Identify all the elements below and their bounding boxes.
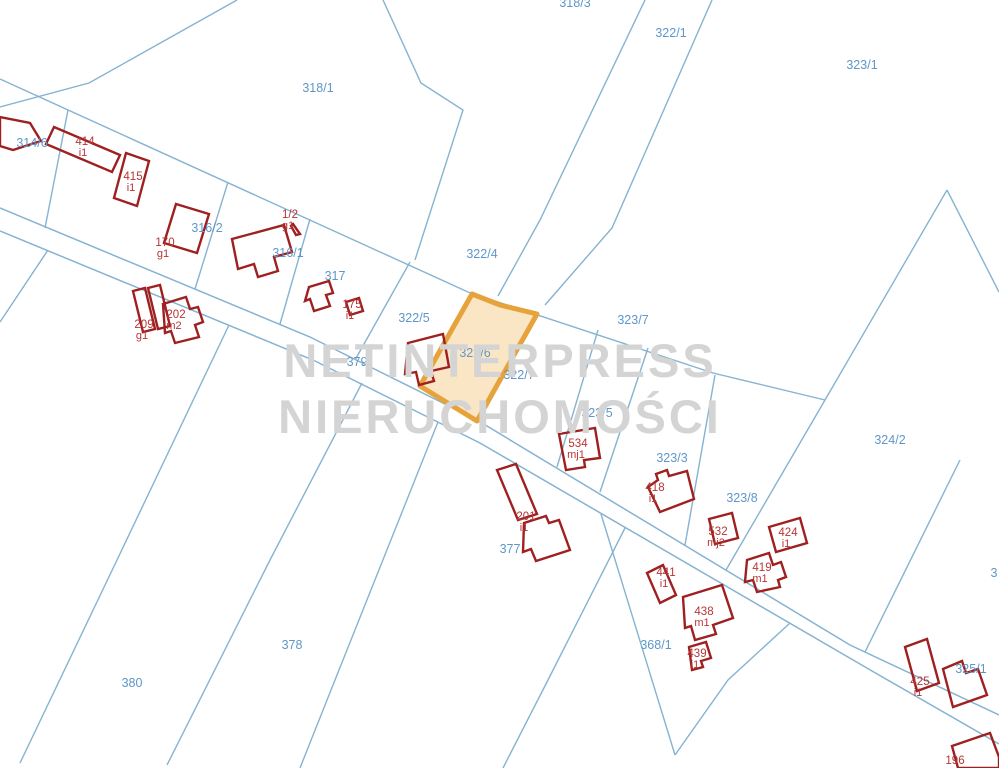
building-suffix-label: m1 — [752, 573, 767, 585]
boundary-line — [195, 182, 228, 289]
building-suffix-label: i1 — [914, 687, 923, 699]
building-suffix-label: i1 — [649, 493, 658, 505]
parcel-label[interactable]: 322/4 — [466, 247, 497, 261]
boundary-line — [726, 190, 947, 570]
building-suffix-label: m2 — [166, 320, 181, 332]
parcel-label[interactable]: 322/1 — [655, 26, 686, 40]
building-suffix-label: i1 — [127, 182, 136, 194]
building-suffix-label: i1 — [660, 578, 669, 590]
building-suffix-label: i1 — [346, 310, 355, 322]
building-suffix-label: g1 — [282, 220, 294, 232]
parcel-label[interactable]: 368/1 — [640, 638, 671, 652]
parcel-label[interactable]: 318/3 — [559, 0, 590, 10]
watermark-line-1: NETINTERPRESS — [283, 334, 716, 387]
map-canvas[interactable]: 318/3322/1323/1318/1314/6316/2316/1322/4… — [0, 0, 999, 768]
cadastral-map: 318/3322/1323/1318/1314/6316/2316/1322/4… — [0, 0, 999, 768]
parcel-label[interactable]: 318/1 — [302, 81, 333, 95]
building-number-label: 196 — [945, 755, 964, 767]
building-suffix-label: i1 — [691, 659, 700, 671]
parcel-label[interactable]: 323/3 — [656, 451, 687, 465]
building-suffix-label: g1 — [157, 248, 169, 260]
boundary-line — [503, 528, 625, 768]
building-suffix-label: i1 — [79, 147, 88, 159]
parcel-label[interactable]: 316/1 — [272, 246, 303, 260]
watermark: NETINTERPRESS NIERUCHOMOŚCI — [278, 334, 722, 443]
boundary-line — [300, 422, 438, 768]
building-suffix-label: mj1 — [567, 449, 585, 461]
parcel-label[interactable]: 380 — [122, 676, 143, 690]
building-suffix-label: g1 — [136, 330, 148, 342]
building-suffix-label: i1 — [520, 522, 529, 534]
parcel-label[interactable]: 314/6 — [16, 136, 47, 150]
boundary-line — [545, 0, 712, 305]
boundary-line — [383, 0, 463, 260]
parcel-label[interactable]: 378 — [282, 638, 303, 652]
boundary-line — [0, 250, 48, 322]
parcel-label[interactable]: 323/8 — [726, 491, 757, 505]
parcel-label[interactable]: 325/1 — [955, 662, 986, 676]
boundary-line — [498, 0, 645, 296]
watermark-line-2: NIERUCHOMOŚCI — [278, 390, 722, 443]
boundary-line — [947, 190, 999, 292]
boundary-line — [865, 460, 960, 652]
parcel-label[interactable]: 322/5 — [398, 311, 429, 325]
building-suffix-label: mj2 — [707, 537, 725, 549]
boundary-line — [675, 623, 790, 755]
building-suffix-label: i1 — [782, 538, 791, 550]
parcel-label[interactable]: 324/2 — [874, 433, 905, 447]
road-edge-line — [0, 208, 999, 715]
boundary-line — [0, 0, 237, 107]
parcel-label[interactable]: 316/2 — [191, 221, 222, 235]
parcel-label[interactable]: 3 — [991, 566, 998, 580]
parcel-label[interactable]: 323/1 — [846, 58, 877, 72]
boundary-line — [20, 325, 229, 763]
parcel-label[interactable]: 317 — [325, 269, 346, 283]
parcel-label[interactable]: 377 — [500, 542, 521, 556]
parcel-label[interactable]: 323/7 — [617, 313, 648, 327]
building-outline[interactable] — [305, 281, 333, 311]
building-suffix-label: m1 — [694, 617, 709, 629]
